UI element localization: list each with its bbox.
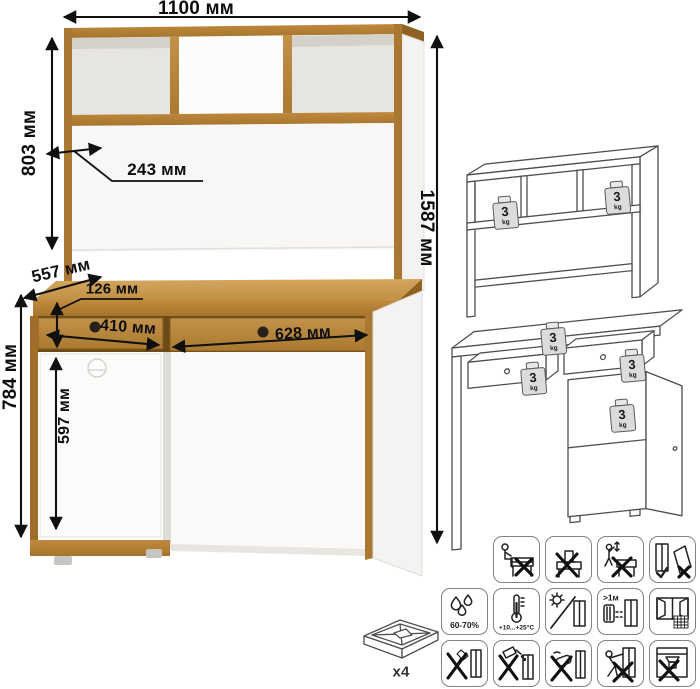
load-badge-left-drawer: 3kg (519, 361, 548, 396)
no-spilling-liquids-icon (493, 640, 540, 687)
dim-right-drawer-width: 628 мм (275, 324, 332, 345)
load-badge-shelf-left: 3kg (491, 195, 520, 230)
temperature-range-icon: +10...+25°C (493, 588, 540, 635)
hutch-lineart (467, 146, 658, 317)
cabinet-door (40, 354, 161, 537)
no-dragging-icon (597, 640, 644, 687)
desk-photo (30, 279, 422, 576)
dim-top-width: 1100 мм (158, 0, 234, 20)
dim-total-height: 1587 мм (415, 189, 437, 266)
dim-hutch-height: 803 мм (19, 110, 41, 176)
dim-door-height: 597 мм (56, 388, 74, 444)
door-handle (88, 359, 106, 377)
no-sharp-tools-icon (441, 640, 488, 687)
keep-1m-from-heaters-icon: >1м (597, 588, 644, 635)
hutch-photo (64, 24, 424, 300)
no-standing-icon (545, 536, 592, 583)
right-drawer-knob (258, 327, 269, 338)
ventilated-room-icon (649, 588, 696, 635)
dim-drawer-front-height: 126 мм (86, 281, 139, 298)
transport-upright-only-icon (649, 536, 696, 583)
no-children-climbing-icon (597, 536, 644, 583)
furniture-dimension-diagram: 1100 мм 803 мм 1587 мм 243 мм 557 мм 126… (0, 0, 700, 689)
diagram-artwork (0, 0, 700, 689)
load-badge-shelf-right: 3kg (603, 180, 632, 215)
dim-left-drawer-width: 410 мм (99, 317, 156, 339)
humidity-value: 60-70% (450, 620, 479, 630)
no-press-loads-icon (649, 640, 696, 687)
no-sitting-icon (493, 536, 540, 583)
load-badge-right-drawer: 3kg (618, 348, 647, 383)
dim-desk-height: 784 мм (0, 344, 22, 410)
feet-count-label: x4 (392, 664, 409, 681)
foot-glide-icon (364, 620, 438, 658)
dim-shelf-side-depth: 243 мм (127, 160, 186, 180)
heater-distance-value: >1м (603, 593, 619, 603)
humidity-range-icon: 60-70% (441, 588, 488, 635)
avoid-direct-sunlight-icon (545, 588, 592, 635)
load-badge-cabinet: 3kg (608, 398, 637, 433)
temperature-value: +10...+25°C (499, 624, 535, 632)
desk-lineart (452, 310, 682, 550)
load-badge-desktop: 3kg (539, 321, 568, 356)
no-abrasive-cleaning-icon (545, 640, 592, 687)
